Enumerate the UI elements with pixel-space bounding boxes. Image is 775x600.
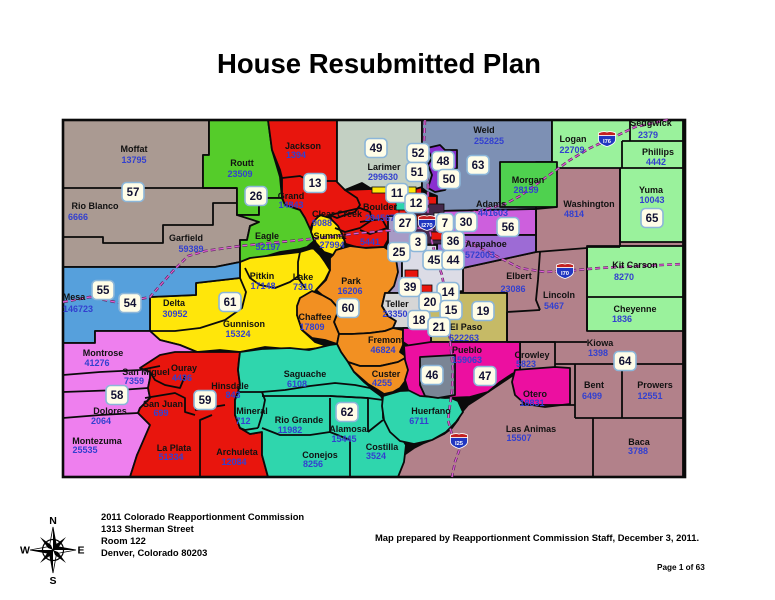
svg-text:Lincoln: Lincoln — [543, 290, 575, 300]
svg-text:N: N — [49, 515, 57, 527]
svg-text:4442: 4442 — [646, 157, 666, 167]
svg-text:5467: 5467 — [544, 301, 564, 311]
svg-text:11: 11 — [391, 188, 404, 200]
svg-text:Delta: Delta — [163, 298, 186, 308]
svg-text:I70: I70 — [561, 271, 569, 277]
svg-text:39: 39 — [404, 282, 417, 294]
svg-text:6711: 6711 — [409, 416, 429, 426]
svg-text:146723: 146723 — [63, 304, 93, 314]
svg-text:Kiowa: Kiowa — [587, 338, 614, 348]
svg-text:Boulder: Boulder — [363, 202, 397, 212]
svg-text:15445: 15445 — [331, 434, 356, 444]
svg-text:Routt: Routt — [230, 158, 254, 168]
svg-text:62: 62 — [341, 407, 354, 419]
svg-text:Bent: Bent — [584, 380, 604, 390]
svg-text:23086: 23086 — [500, 284, 525, 294]
svg-text:12551: 12551 — [637, 391, 662, 401]
svg-text:63: 63 — [472, 160, 485, 172]
svg-text:2011 Colorado Reapportionment: 2011 Colorado Reapportionment Commission — [101, 511, 304, 522]
svg-text:30: 30 — [460, 217, 473, 229]
svg-text:572003: 572003 — [465, 250, 495, 260]
svg-text:Mineral: Mineral — [236, 406, 268, 416]
svg-text:Eagle: Eagle — [255, 231, 279, 241]
svg-text:159063: 159063 — [452, 355, 482, 365]
svg-text:Gunnison: Gunnison — [223, 319, 265, 329]
svg-text:Washington: Washington — [563, 199, 614, 209]
svg-text:9088: 9088 — [312, 218, 332, 228]
svg-text:64: 64 — [619, 356, 632, 368]
svg-text:Montrose: Montrose — [83, 348, 124, 358]
svg-text:30952: 30952 — [162, 309, 187, 319]
svg-text:57: 57 — [127, 187, 140, 199]
svg-text:W: W — [20, 545, 30, 557]
svg-text:House Resubmitted Plan: House Resubmitted Plan — [217, 48, 541, 79]
svg-text:56: 56 — [502, 222, 515, 234]
svg-text:47: 47 — [479, 371, 492, 383]
svg-text:19: 19 — [477, 306, 490, 318]
svg-text:Logan: Logan — [560, 134, 587, 144]
svg-text:26: 26 — [250, 191, 263, 203]
svg-text:843: 843 — [225, 390, 240, 400]
svg-text:51334: 51334 — [158, 452, 183, 462]
svg-text:I25: I25 — [455, 441, 464, 447]
svg-text:Weld: Weld — [473, 125, 494, 135]
svg-text:Sedgwick: Sedgwick — [630, 118, 673, 128]
svg-text:Phillips: Phillips — [642, 147, 674, 157]
svg-text:13795: 13795 — [121, 155, 146, 165]
svg-text:54: 54 — [124, 298, 137, 310]
svg-text:1398: 1398 — [588, 348, 608, 358]
svg-text:294567: 294567 — [365, 213, 395, 223]
svg-text:1313 Sherman Street: 1313 Sherman Street — [101, 523, 194, 534]
svg-text:Room 122: Room 122 — [101, 535, 146, 546]
svg-text:14: 14 — [442, 287, 455, 299]
svg-text:36: 36 — [447, 236, 460, 248]
svg-text:8270: 8270 — [614, 272, 634, 282]
svg-text:S: S — [49, 575, 56, 587]
svg-text:E: E — [77, 545, 84, 557]
svg-text:60: 60 — [342, 303, 355, 315]
svg-text:7: 7 — [442, 218, 448, 230]
svg-text:6108: 6108 — [287, 379, 307, 389]
svg-text:Cheyenne: Cheyenne — [613, 304, 656, 314]
svg-text:1394: 1394 — [286, 150, 306, 160]
svg-text:299630: 299630 — [368, 172, 398, 182]
svg-text:Huerfano: Huerfano — [411, 406, 451, 416]
svg-text:11982: 11982 — [278, 425, 303, 435]
svg-text:1836: 1836 — [612, 314, 632, 324]
svg-text:Fremont: Fremont — [368, 335, 404, 345]
svg-text:15: 15 — [445, 305, 458, 317]
svg-text:I76: I76 — [603, 139, 612, 145]
svg-text:4436: 4436 — [172, 373, 192, 383]
svg-text:2064: 2064 — [91, 416, 111, 426]
svg-text:15324: 15324 — [225, 329, 250, 339]
svg-text:441603: 441603 — [478, 208, 508, 218]
svg-text:Larimer: Larimer — [367, 162, 401, 172]
svg-text:28159: 28159 — [513, 185, 538, 195]
svg-text:49: 49 — [370, 143, 383, 155]
svg-text:12084: 12084 — [221, 457, 246, 467]
svg-text:Arapahoe: Arapahoe — [465, 239, 507, 249]
svg-text:23509: 23509 — [227, 169, 252, 179]
svg-text:Moffat: Moffat — [121, 144, 148, 154]
svg-text:Lake: Lake — [293, 272, 314, 282]
svg-text:Pitkin: Pitkin — [250, 271, 275, 281]
svg-text:50: 50 — [443, 174, 456, 186]
svg-text:15507: 15507 — [506, 433, 531, 443]
svg-text:Park: Park — [341, 276, 362, 286]
svg-text:Rio Blanco: Rio Blanco — [71, 201, 119, 211]
svg-text:55: 55 — [97, 285, 110, 297]
svg-text:5823: 5823 — [516, 359, 536, 369]
svg-text:44: 44 — [447, 255, 460, 267]
svg-text:41276: 41276 — [84, 358, 109, 368]
svg-text:Elbert: Elbert — [506, 271, 532, 281]
svg-text:59: 59 — [199, 395, 212, 407]
svg-text:17148: 17148 — [250, 281, 275, 291]
svg-text:699: 699 — [153, 408, 168, 418]
svg-text:59389: 59389 — [178, 244, 203, 254]
svg-text:Page 1 of 63: Page 1 of 63 — [657, 563, 705, 572]
svg-text:I270: I270 — [421, 223, 432, 229]
svg-text:Rio Grande: Rio Grande — [275, 415, 324, 425]
svg-text:Yuma: Yuma — [639, 185, 664, 195]
svg-text:46824: 46824 — [370, 345, 395, 355]
svg-text:7359: 7359 — [124, 376, 144, 386]
svg-text:3788: 3788 — [628, 446, 648, 456]
svg-text:14843: 14843 — [278, 200, 303, 210]
svg-text:Chaffee: Chaffee — [298, 312, 331, 322]
svg-text:Morgan: Morgan — [512, 175, 545, 185]
svg-text:16206: 16206 — [337, 286, 362, 296]
svg-text:20: 20 — [424, 297, 437, 309]
svg-text:6499: 6499 — [582, 391, 602, 401]
svg-text:23350: 23350 — [382, 309, 407, 319]
svg-text:51: 51 — [411, 167, 424, 179]
svg-text:58: 58 — [111, 390, 124, 402]
svg-text:7310: 7310 — [293, 282, 313, 292]
svg-text:712: 712 — [235, 416, 250, 426]
svg-text:Dolores: Dolores — [93, 406, 127, 416]
svg-text:Archuleta: Archuleta — [216, 447, 259, 457]
svg-text:Map prepared by Reapportionmen: Map prepared by Reapportionment Commissi… — [375, 532, 699, 543]
svg-text:52197: 52197 — [255, 242, 280, 252]
svg-text:13: 13 — [309, 178, 322, 190]
svg-text:252825: 252825 — [474, 136, 504, 146]
svg-text:Ouray: Ouray — [171, 363, 197, 373]
svg-text:2379: 2379 — [638, 130, 658, 140]
svg-text:52: 52 — [412, 148, 425, 160]
svg-text:48: 48 — [437, 156, 450, 168]
svg-text:Alamosa: Alamosa — [329, 424, 368, 434]
svg-text:Pueblo: Pueblo — [452, 345, 483, 355]
svg-text:25: 25 — [393, 247, 406, 259]
svg-text:Mesa: Mesa — [63, 292, 87, 302]
svg-text:4814: 4814 — [564, 209, 584, 219]
svg-text:Denver, Colorado 80203: Denver, Colorado 80203 — [101, 547, 207, 558]
svg-text:10043: 10043 — [639, 195, 664, 205]
svg-text:8256: 8256 — [303, 459, 323, 469]
svg-text:46: 46 — [426, 370, 439, 382]
svg-text:4255: 4255 — [372, 378, 392, 388]
svg-text:Kit Carson: Kit Carson — [612, 260, 658, 270]
svg-text:Prowers: Prowers — [637, 380, 673, 390]
svg-text:12: 12 — [410, 198, 423, 210]
svg-text:27994: 27994 — [319, 240, 344, 250]
svg-text:3524: 3524 — [366, 451, 386, 461]
svg-text:22709: 22709 — [559, 145, 584, 155]
svg-text:Saguache: Saguache — [284, 369, 327, 379]
svg-text:25535: 25535 — [72, 445, 97, 455]
svg-text:27: 27 — [399, 218, 412, 230]
svg-text:622263: 622263 — [449, 333, 479, 343]
svg-text:61: 61 — [224, 297, 237, 309]
svg-text:6666: 6666 — [68, 212, 88, 222]
svg-text:Teller: Teller — [385, 299, 409, 309]
svg-text:17809: 17809 — [299, 322, 324, 332]
svg-text:3: 3 — [415, 237, 421, 249]
svg-text:65: 65 — [646, 213, 659, 225]
svg-text:5441: 5441 — [360, 237, 380, 247]
svg-text:18: 18 — [413, 315, 426, 327]
svg-text:21: 21 — [433, 322, 446, 334]
svg-text:Garfield: Garfield — [169, 233, 203, 243]
svg-text:45: 45 — [428, 255, 441, 267]
svg-text:El Paso: El Paso — [450, 322, 483, 332]
svg-text:18831: 18831 — [519, 398, 544, 408]
